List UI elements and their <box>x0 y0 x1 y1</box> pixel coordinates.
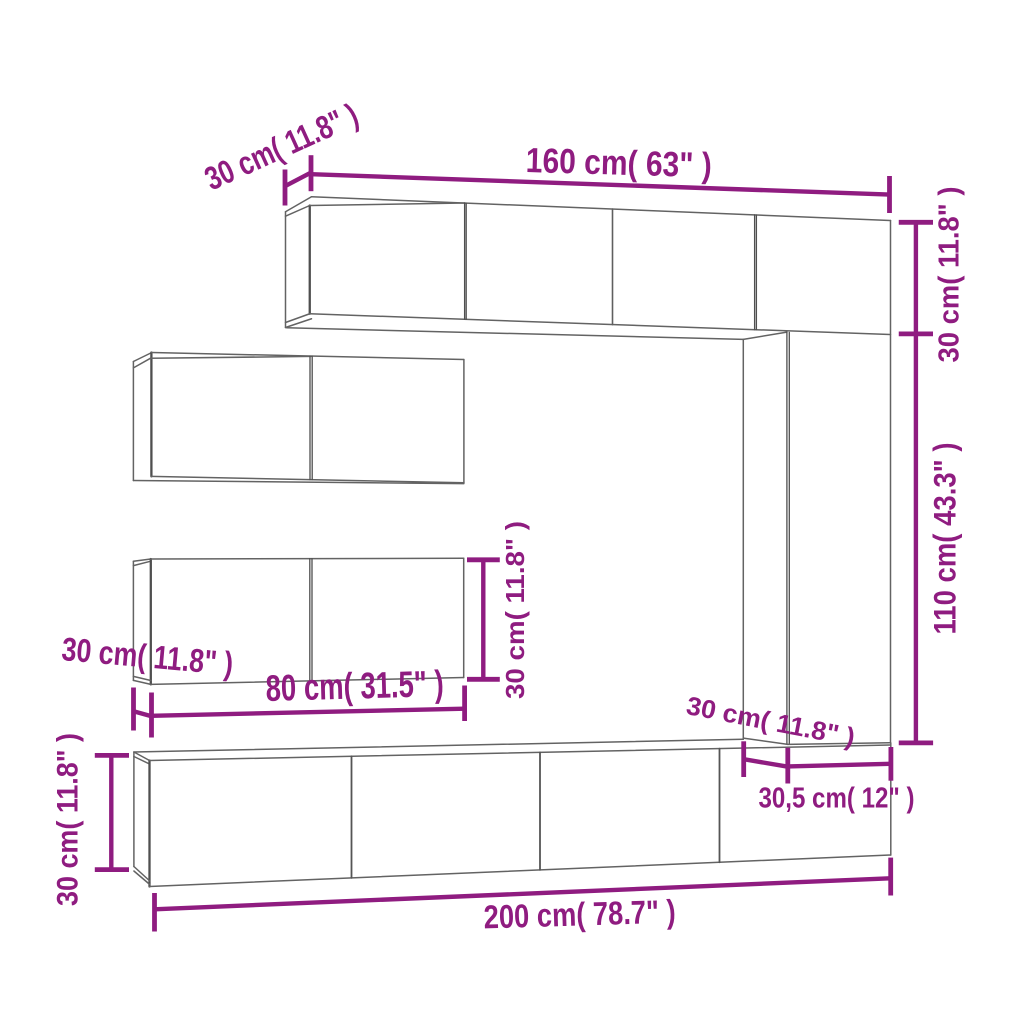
svg-text:80 cm( 31.5" ): 80 cm( 31.5" ) <box>265 663 444 709</box>
svg-text:30 cm( 11.8" ): 30 cm( 11.8" ) <box>51 733 84 906</box>
svg-text:200 cm( 78.7" ): 200 cm( 78.7" ) <box>483 893 676 936</box>
svg-text:30 cm( 11.8" ): 30 cm( 11.8" ) <box>500 521 530 699</box>
svg-text:30,5 cm( 12" ): 30,5 cm( 12" ) <box>759 783 915 815</box>
svg-text:160 cm( 63" ): 160 cm( 63" ) <box>525 141 712 185</box>
svg-text:110 cm( 43.3" ): 110 cm( 43.3" ) <box>926 443 962 635</box>
svg-text:30 cm( 11.8" ): 30 cm( 11.8" ) <box>934 187 966 363</box>
